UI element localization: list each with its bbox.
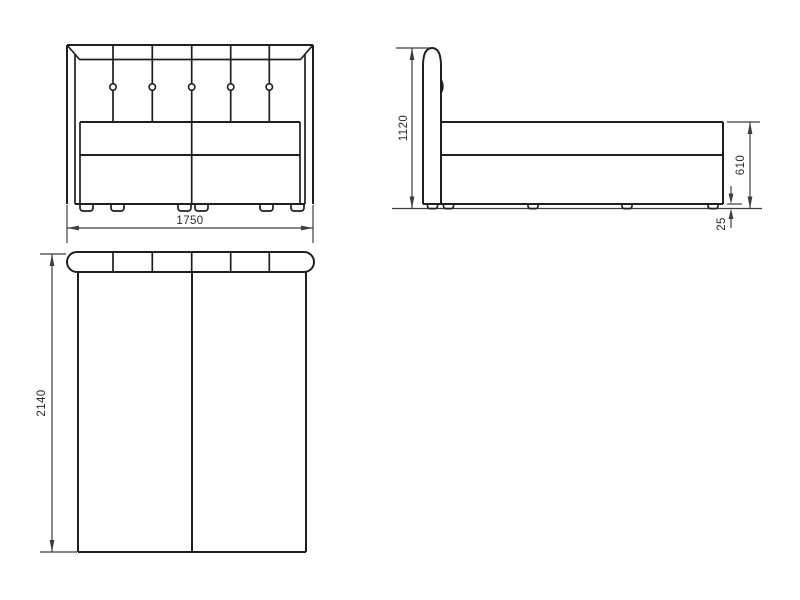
plan-headboard-segment-lines xyxy=(113,252,269,272)
button-icon xyxy=(266,84,272,90)
front-crown-slant-right xyxy=(300,45,313,60)
front-headboard-buttons xyxy=(110,84,273,90)
foot xyxy=(195,205,208,211)
button-icon xyxy=(189,84,195,90)
arrowhead-top xyxy=(748,122,753,134)
arrowhead-bottom xyxy=(410,197,415,209)
foot xyxy=(528,205,538,209)
button-icon xyxy=(149,84,155,90)
foot xyxy=(260,205,273,211)
arrowhead-up xyxy=(729,209,734,220)
arrowhead-bottom xyxy=(748,197,753,209)
foot xyxy=(444,205,454,209)
side-body-height-value: 610 xyxy=(735,155,747,175)
front-feet xyxy=(80,205,304,211)
top-view: 2140 xyxy=(36,252,314,552)
drawing-svg: 1750 1120 xyxy=(0,0,800,600)
arrowhead-bottom xyxy=(50,540,55,552)
plan-length-value: 2140 xyxy=(36,389,48,416)
side-feet-height-value: 25 xyxy=(716,217,728,231)
foot xyxy=(80,205,93,211)
side-headboard xyxy=(423,48,441,204)
foot xyxy=(622,205,632,209)
arrowhead-top xyxy=(410,48,415,60)
foot xyxy=(708,205,718,209)
bed-technical-drawing: 1750 1120 xyxy=(0,0,800,600)
plan-length-dimension: 2140 xyxy=(36,254,77,552)
front-width-value: 1750 xyxy=(176,215,203,227)
button-icon xyxy=(110,84,116,90)
arrowhead-right xyxy=(301,226,313,231)
front-tufting-lines xyxy=(113,46,269,204)
arrowhead-left xyxy=(67,226,79,231)
foot xyxy=(111,205,124,211)
front-view: 1750 xyxy=(67,45,313,243)
plan-headboard-bar xyxy=(67,252,314,272)
foot xyxy=(291,205,304,211)
arrowhead-down xyxy=(729,194,734,205)
side-view: 1120 610 25 xyxy=(392,48,762,231)
front-crown-slant-left xyxy=(67,45,80,60)
foot xyxy=(428,205,438,209)
button-icon xyxy=(228,84,234,90)
foot xyxy=(178,205,191,211)
arrowhead-top xyxy=(50,254,55,266)
side-height-dimension: 1120 xyxy=(396,48,429,209)
side-height-value: 1120 xyxy=(398,115,410,141)
